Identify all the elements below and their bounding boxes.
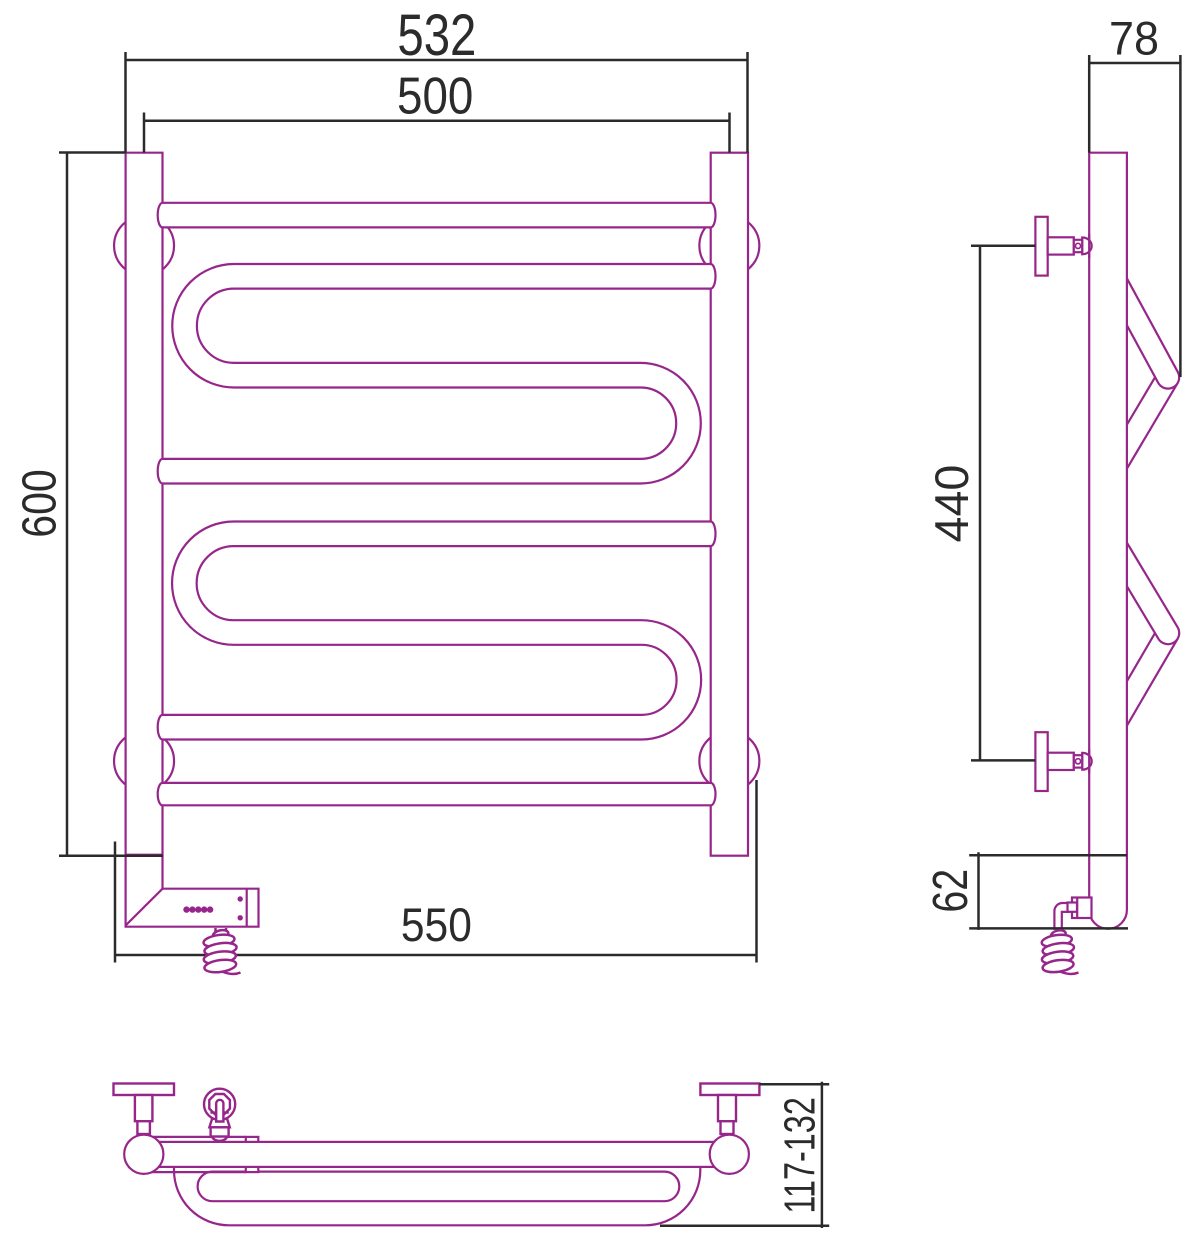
svg-text:440: 440 [926,465,979,543]
svg-text:117-132: 117-132 [776,1097,825,1214]
svg-text:532: 532 [397,3,476,68]
svg-text:78: 78 [1109,13,1159,66]
svg-text:600: 600 [12,469,66,538]
svg-text:500: 500 [397,67,473,125]
svg-text:62: 62 [924,869,978,913]
svg-text:550: 550 [401,899,472,952]
